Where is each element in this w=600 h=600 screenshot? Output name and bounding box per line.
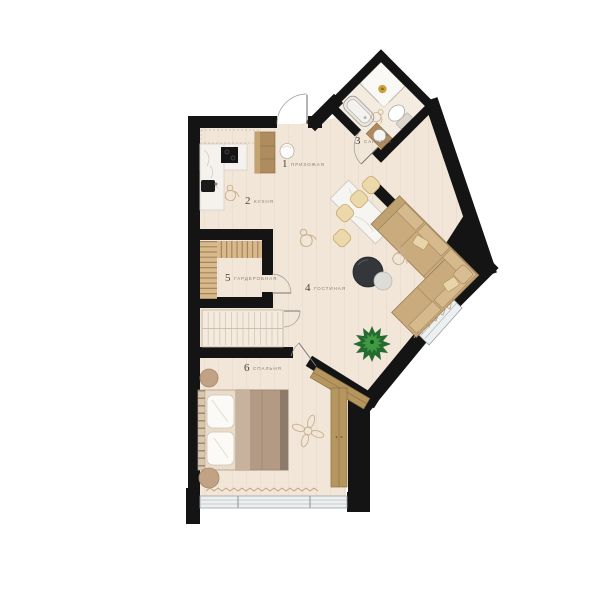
cooktop — [221, 147, 238, 163]
room-label-5: ГАРДЕРОБНАЯ — [234, 276, 277, 281]
room-label-6: СПАЛЬНЯ — [253, 366, 282, 371]
kitchen-sink — [201, 180, 215, 192]
room-label-4: ГОСТИНАЯ — [314, 286, 346, 291]
room-number-2: 2 — [245, 195, 251, 207]
coffee-table-light — [374, 272, 392, 290]
bottom-window — [200, 496, 347, 508]
bedroom-wardrobe — [331, 388, 347, 487]
room-number-5: 5 — [225, 272, 231, 284]
pillow — [207, 432, 234, 465]
pouf — [200, 369, 218, 387]
shelf-left — [200, 241, 217, 299]
room-number-4: 4 — [305, 282, 311, 294]
room-label-3: САНУЗЕЛ — [364, 139, 392, 144]
room-label-2: КУХНЯ — [254, 199, 274, 204]
bedroom-closet — [202, 310, 283, 347]
bed — [198, 390, 288, 470]
floor-plan: 1 ПРИХОЖАЯ 2 КУХНЯ 3 САНУЗЕЛ 4 ГОСТИНАЯ … — [0, 0, 600, 600]
floor-plan-canvas: 1 ПРИХОЖАЯ 2 КУХНЯ 3 САНУЗЕЛ 4 ГОСТИНАЯ … — [0, 0, 600, 600]
room-number-6: 6 — [244, 362, 250, 374]
pouf — [199, 468, 219, 488]
bed-runner — [280, 390, 288, 470]
room-label-1: ПРИХОЖАЯ — [291, 162, 325, 167]
room-number-1: 1 — [282, 158, 288, 170]
entrance-door — [277, 94, 307, 124]
room-number-3: 3 — [355, 135, 361, 147]
